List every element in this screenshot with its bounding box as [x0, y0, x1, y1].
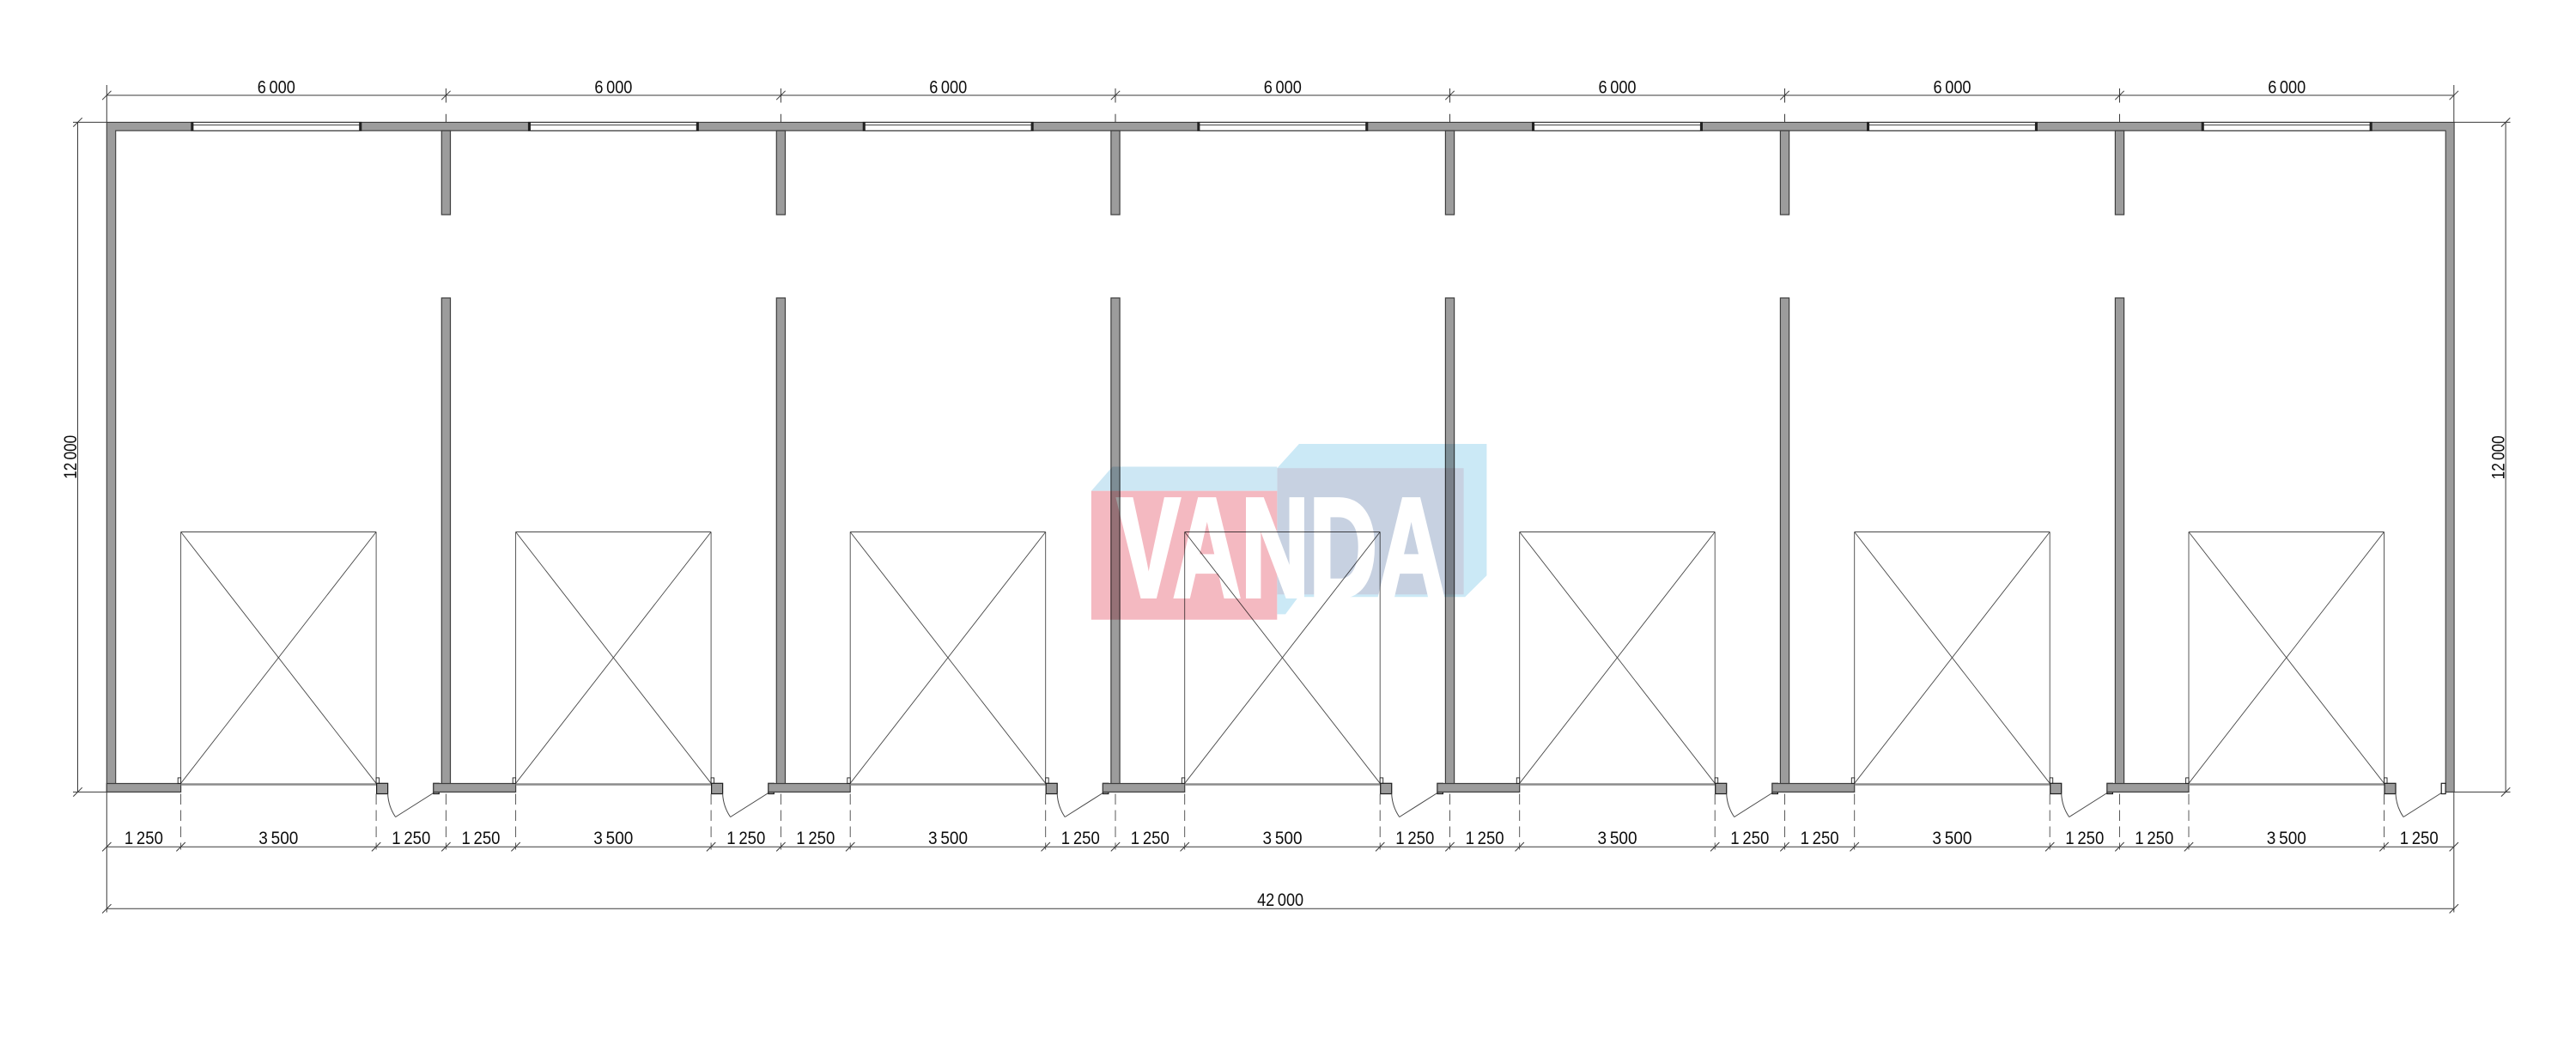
svg-text:VANDA: VANDA [1117, 469, 1445, 626]
